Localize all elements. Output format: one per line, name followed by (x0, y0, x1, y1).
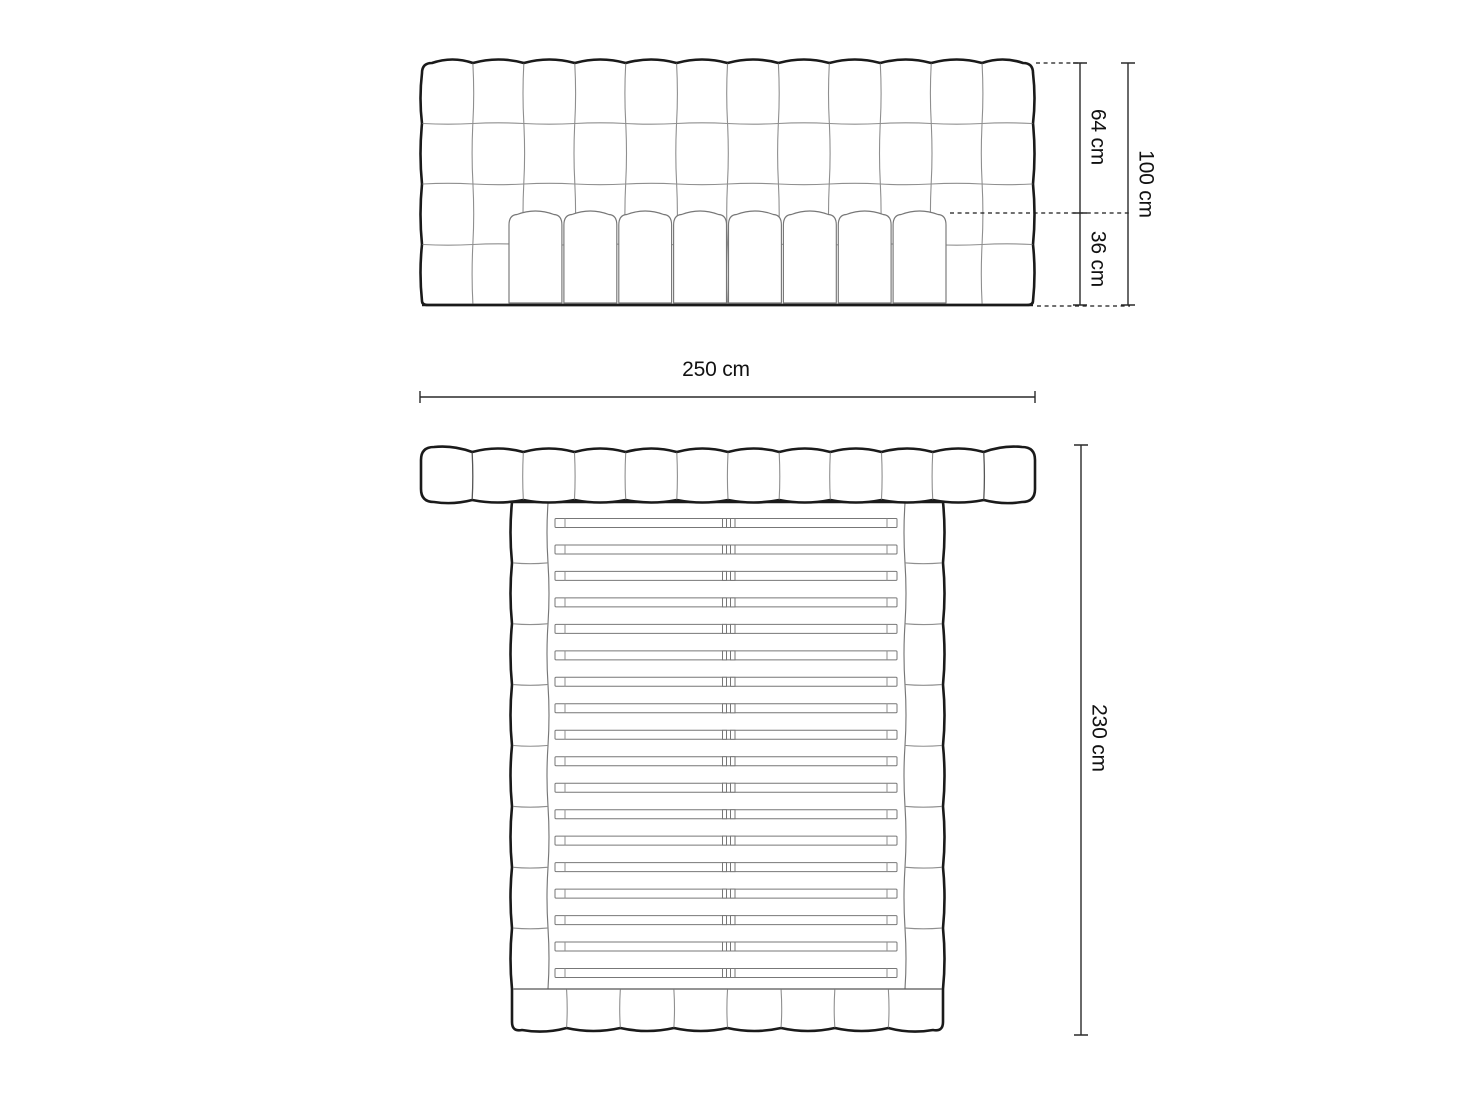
center-rail-mark (723, 836, 727, 845)
center-rail-mark (723, 889, 727, 898)
center-rail-mark (731, 969, 736, 978)
lower-height-label: 36 cm (1087, 231, 1110, 287)
center-rail-mark (731, 571, 736, 580)
slat (555, 863, 897, 872)
mattress-cushion (564, 211, 617, 303)
mattress-cushion (674, 211, 727, 303)
width-dimension: 250 cm (420, 358, 1035, 403)
center-rail-mark (731, 651, 736, 660)
center-rail-mark (731, 704, 736, 713)
length-dimension: 230 cm (1074, 445, 1111, 1035)
slat (555, 571, 897, 580)
slat (555, 942, 897, 951)
center-rail-mark (723, 598, 727, 607)
dim-line-outer (1121, 63, 1135, 305)
front-view (421, 60, 1035, 306)
center-rail-mark (723, 545, 727, 554)
mattress-cushion (893, 211, 946, 303)
mattress-cushion (729, 211, 782, 303)
center-rail-mark (723, 624, 727, 633)
top-view (421, 447, 1035, 1032)
slat (555, 889, 897, 898)
length-label: 230 cm (1088, 704, 1111, 772)
length-dimension-line (1074, 445, 1088, 1035)
center-rail-mark (723, 969, 727, 978)
center-rail-mark (731, 757, 736, 766)
center-rail-mark (723, 810, 727, 819)
bed-dimension-diagram: 64 cm 36 cm 100 cm 250 cm 230 cm (0, 0, 1466, 1100)
center-rail-mark (731, 889, 736, 898)
center-rail-mark (723, 730, 727, 739)
mattress-cushion (838, 211, 891, 303)
dim-line-inner (1073, 63, 1087, 305)
center-rail-mark (723, 651, 727, 660)
center-rail-mark (731, 942, 736, 951)
slat (555, 545, 897, 554)
slat (555, 704, 897, 713)
slat (555, 836, 897, 845)
slat (555, 783, 897, 792)
center-rail-mark (731, 836, 736, 845)
center-rail-mark (723, 677, 727, 686)
center-rail-mark (723, 863, 727, 872)
center-rail-mark (731, 545, 736, 554)
center-rail-mark (723, 704, 727, 713)
slat (555, 598, 897, 607)
center-rail-mark (731, 916, 736, 925)
slat (555, 810, 897, 819)
slat (555, 624, 897, 633)
center-rail-mark (723, 571, 727, 580)
mattress-cushion (783, 211, 836, 303)
slat (555, 757, 897, 766)
center-rail-mark (731, 598, 736, 607)
width-dimension-line (420, 391, 1035, 403)
upper-height-label: 64 cm (1087, 109, 1110, 165)
diagram-canvas: 64 cm 36 cm 100 cm 250 cm 230 cm (0, 0, 1466, 1100)
center-rail-mark (723, 783, 727, 792)
slat (555, 730, 897, 739)
mattress-cushion (509, 211, 562, 303)
mattress-cushion (619, 211, 672, 303)
center-rail-mark (723, 757, 727, 766)
center-rail-mark (731, 677, 736, 686)
center-rail-mark (731, 863, 736, 872)
bed-frame-outline (511, 502, 945, 1032)
center-rail-mark (723, 916, 727, 925)
center-rail-mark (723, 942, 727, 951)
slat (555, 519, 897, 528)
width-label: 250 cm (682, 358, 750, 381)
center-rail-mark (723, 519, 727, 528)
total-height-label: 100 cm (1135, 150, 1158, 218)
center-rail-mark (731, 810, 736, 819)
slat (555, 651, 897, 660)
center-rail-mark (731, 519, 736, 528)
center-rail-mark (731, 783, 736, 792)
slat (555, 969, 897, 978)
slat (555, 916, 897, 925)
center-rail-mark (731, 730, 736, 739)
center-rail-mark (731, 624, 736, 633)
slat (555, 677, 897, 686)
